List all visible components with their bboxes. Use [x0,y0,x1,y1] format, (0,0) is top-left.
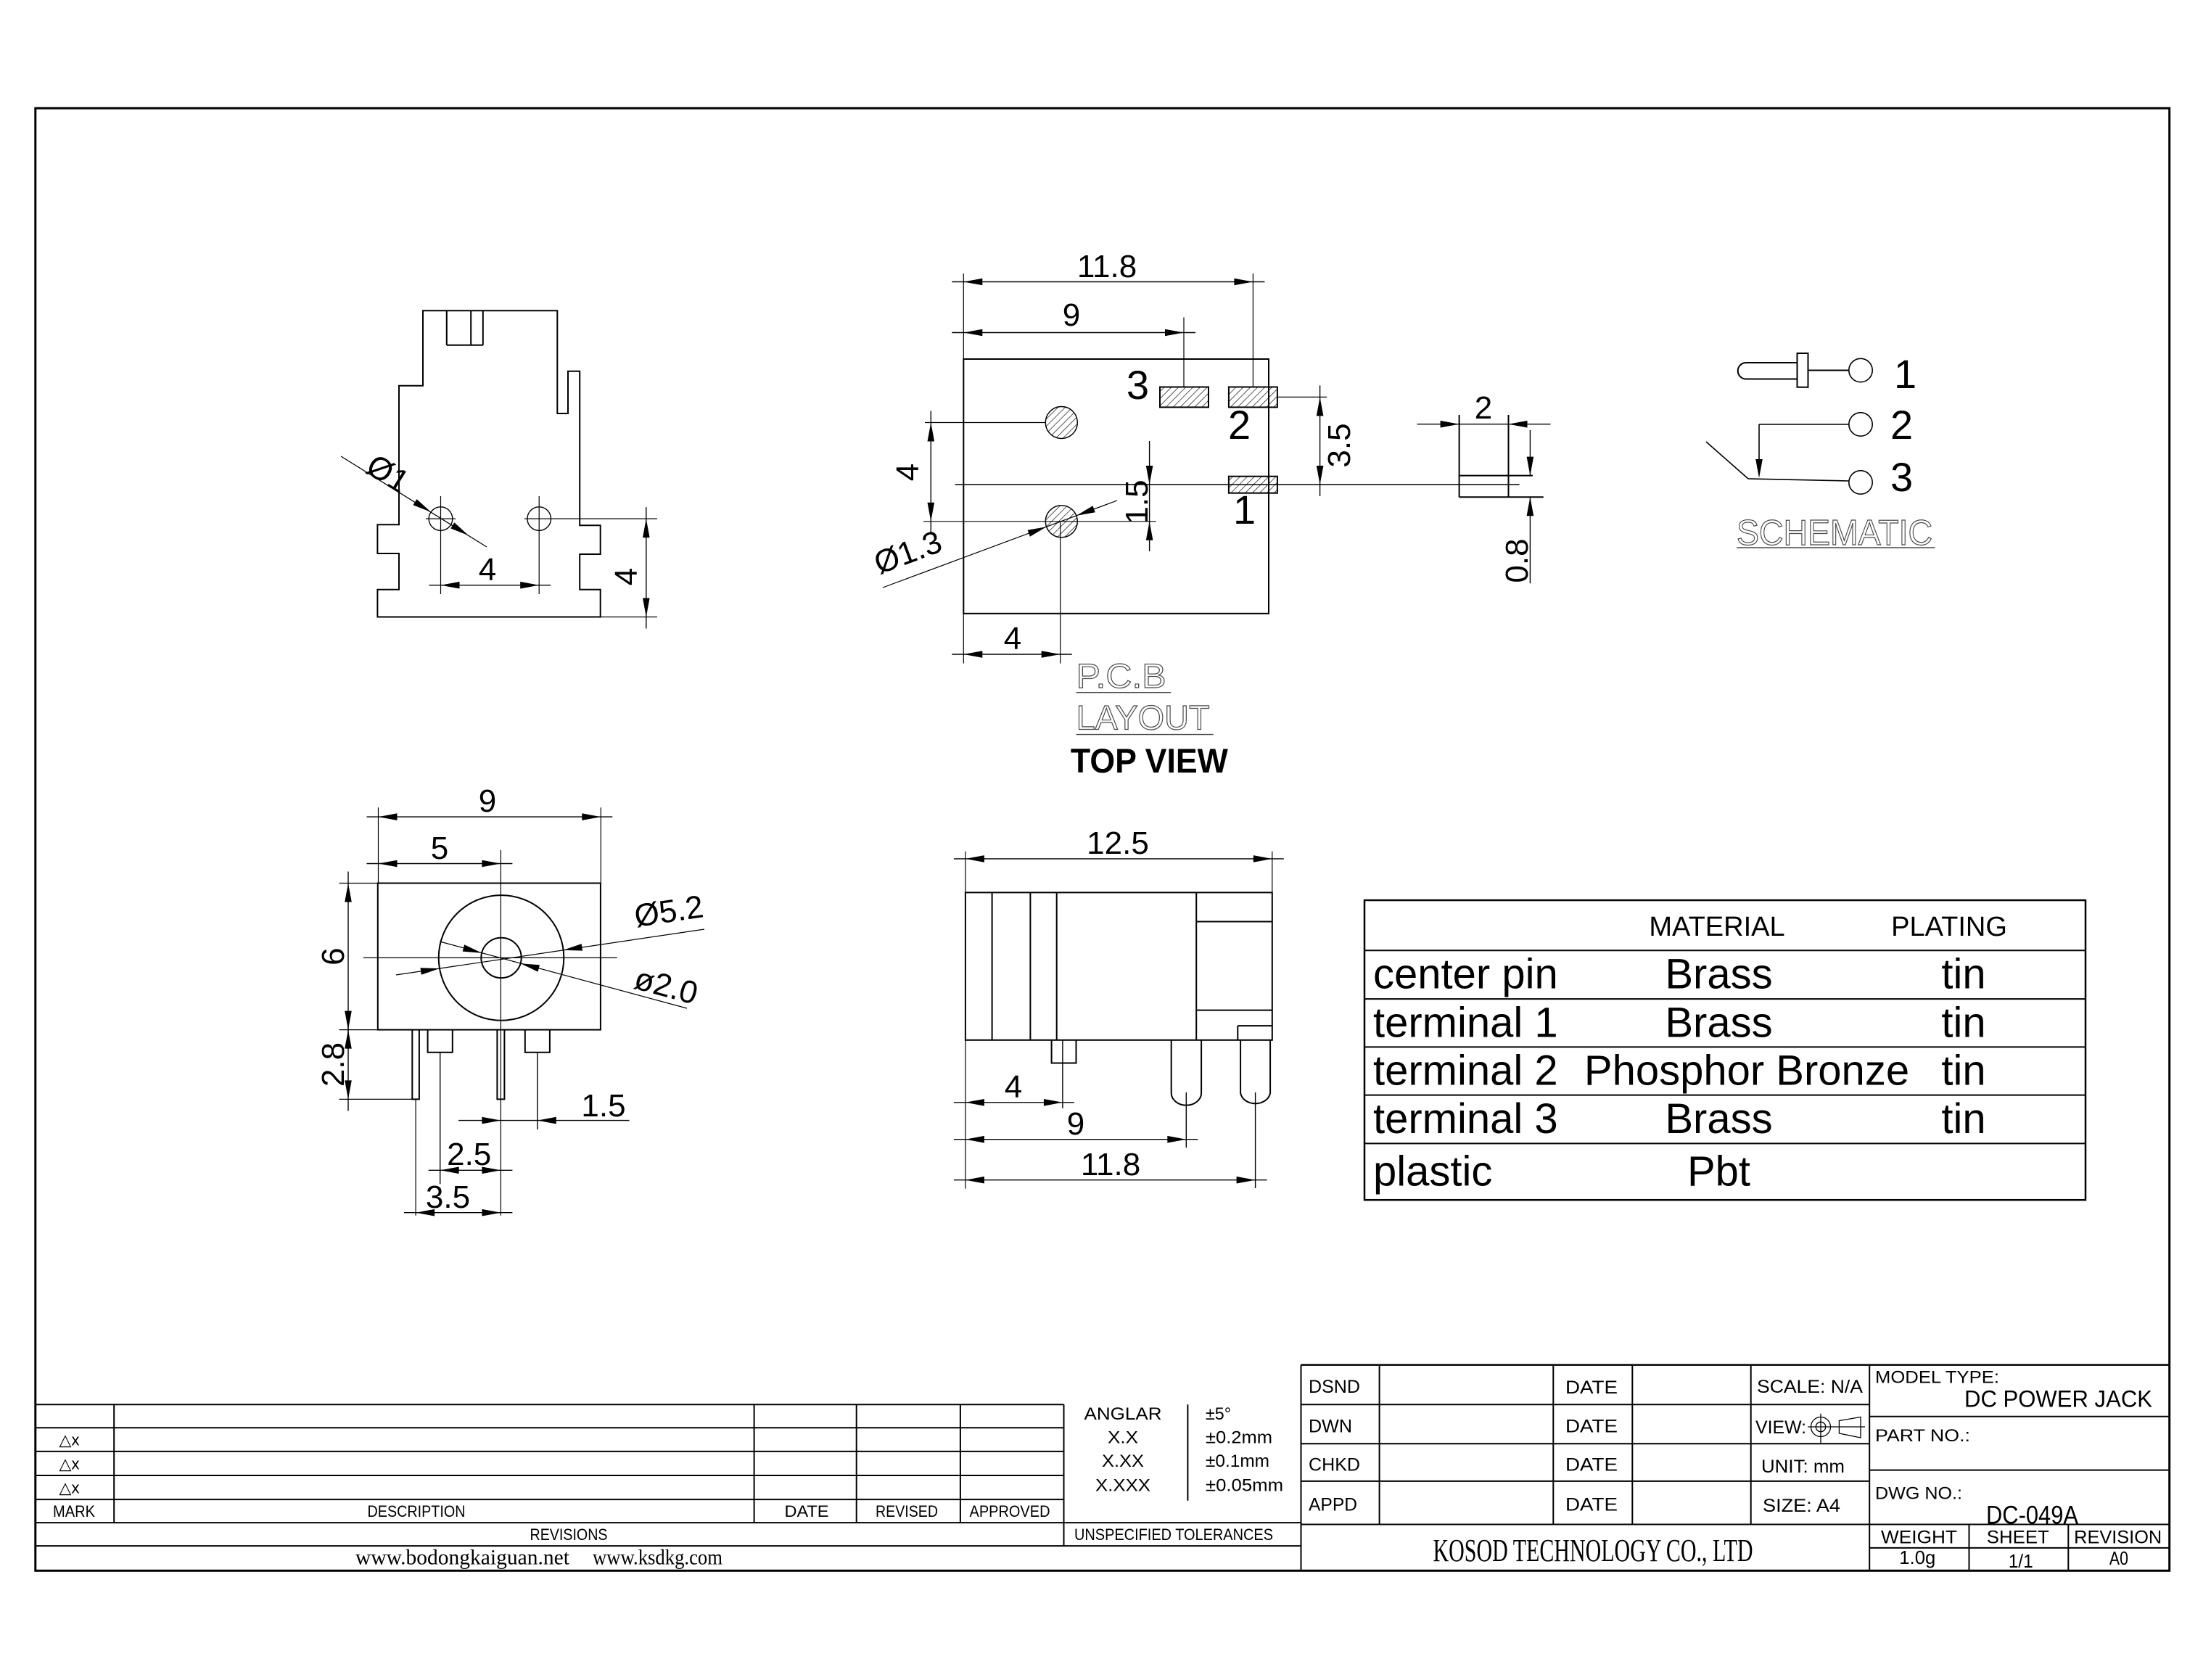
svg-text:DWG NO.:: DWG NO.: [1875,1483,1962,1503]
svg-text:△x: △x [59,1479,80,1497]
svg-text:www.bodongkaiguan.net: www.bodongkaiguan.net [355,1546,570,1570]
svg-text:tin: tin [1941,999,1985,1046]
svg-text:terminal 1: terminal 1 [1373,999,1558,1046]
svg-text:Pbt: Pbt [1687,1148,1750,1195]
svg-text:1/1: 1/1 [2009,1550,2033,1572]
svg-text:DATE: DATE [785,1502,829,1520]
svg-text:±0.1mm: ±0.1mm [1206,1452,1269,1471]
svg-text:1.0g: 1.0g [1899,1547,1935,1568]
svg-text:DATE: DATE [1565,1378,1618,1398]
svg-text:1: 1 [1233,487,1256,532]
svg-text:www.ksdkg.com: www.ksdkg.com [593,1546,722,1570]
svg-text:9: 9 [1063,297,1080,333]
svg-text:UNIT: mm: UNIT: mm [1761,1457,1845,1477]
svg-text:SCHEMATIC: SCHEMATIC [1737,514,1932,553]
svg-text:TOP VIEW: TOP VIEW [1071,741,1229,780]
svg-text:PLATING: PLATING [1891,912,2007,942]
svg-text:11.8: 11.8 [1081,1147,1140,1182]
svg-text:Phosphor Bronze: Phosphor Bronze [1584,1047,1909,1095]
svg-text:DC-049A: DC-049A [1986,1502,2079,1530]
svg-text:PART NO.:: PART NO.: [1875,1426,1970,1446]
svg-text:tin: tin [1941,951,1985,998]
svg-text:tin: tin [1941,1095,1985,1142]
svg-text:MARK: MARK [53,1502,95,1520]
svg-text:terminal 2: terminal 2 [1373,1047,1558,1095]
svg-text:4: 4 [609,568,644,585]
svg-text:2.8: 2.8 [316,1042,351,1087]
svg-text:1.5: 1.5 [1119,479,1155,524]
svg-text:CHKD: CHKD [1309,1454,1360,1475]
svg-text:2: 2 [1228,402,1251,448]
svg-text:X.XXX: X.XXX [1095,1475,1150,1495]
svg-text:4: 4 [1005,1069,1022,1105]
svg-text:KOSOD TECHNOLOGY CO., LTD: KOSOD TECHNOLOGY CO., LTD [1433,1533,1753,1568]
svg-text:SIZE: A4: SIZE: A4 [1763,1496,1840,1516]
svg-text:LAYOUT: LAYOUT [1076,699,1210,737]
svg-text:1.5: 1.5 [581,1088,625,1124]
svg-text:DATE: DATE [1565,1495,1618,1515]
svg-text:4: 4 [1004,621,1021,656]
svg-text:WEIGHT: WEIGHT [1881,1527,1957,1547]
svg-text:SHEET: SHEET [1987,1527,2049,1547]
svg-text:DESCRIPTION: DESCRIPTION [368,1502,466,1520]
svg-text:REVISED: REVISED [876,1502,938,1520]
svg-text:0.8: 0.8 [1499,538,1535,582]
svg-text:SCALE: N/A: SCALE: N/A [1757,1377,1863,1397]
svg-text:△x: △x [59,1454,80,1473]
svg-text:DSND: DSND [1309,1377,1360,1397]
svg-text:12.5: 12.5 [1087,825,1149,861]
svg-text:REVISION: REVISION [2074,1527,2162,1547]
svg-text:±5°: ±5° [1206,1404,1231,1424]
svg-text:6: 6 [316,947,351,965]
svg-text:P.C.B: P.C.B [1076,656,1166,695]
svg-text:MODEL TYPE:: MODEL TYPE: [1875,1367,1999,1387]
svg-text:3.5: 3.5 [1322,423,1357,467]
svg-text:terminal 3: terminal 3 [1373,1095,1558,1142]
svg-text:2.5: 2.5 [447,1137,491,1172]
svg-text:REVISIONS: REVISIONS [530,1525,608,1544]
svg-text:3.5: 3.5 [426,1179,470,1215]
svg-text:3: 3 [1127,362,1149,408]
svg-text:Brass: Brass [1665,999,1772,1046]
svg-text:tin: tin [1941,1047,1985,1095]
svg-text:DC POWER JACK: DC POWER JACK [1964,1385,2152,1412]
svg-text:center pin: center pin [1373,951,1558,998]
svg-text:Brass: Brass [1665,951,1772,998]
svg-text:A0: A0 [2109,1547,2128,1569]
svg-text:9: 9 [1067,1106,1084,1142]
svg-text:9: 9 [479,783,496,819]
svg-text:4: 4 [479,552,496,588]
svg-text:DATE: DATE [1565,1454,1618,1475]
svg-text:2: 2 [1890,402,1913,448]
svg-text:△x: △x [59,1431,80,1449]
svg-text:3: 3 [1890,454,1913,500]
svg-text:1: 1 [1894,351,1916,397]
svg-text:±0.2mm: ±0.2mm [1206,1428,1272,1448]
svg-text:ANGLAR: ANGLAR [1084,1404,1162,1424]
svg-text:X.X: X.X [1108,1428,1138,1448]
svg-text:MATERIAL: MATERIAL [1649,912,1784,942]
svg-text:5: 5 [431,831,448,866]
svg-text:APPD: APPD [1309,1495,1357,1515]
svg-text:2: 2 [1475,390,1492,426]
svg-text:DWN: DWN [1309,1417,1352,1437]
svg-text:Brass: Brass [1665,1095,1772,1142]
svg-text:plastic: plastic [1373,1148,1492,1195]
svg-text:4: 4 [890,464,926,481]
svg-text:VIEW:: VIEW: [1755,1417,1806,1438]
svg-text:DATE: DATE [1565,1417,1618,1437]
svg-text:11.8: 11.8 [1077,249,1137,284]
svg-text:UNSPECIFIED TOLERANCES: UNSPECIFIED TOLERANCES [1074,1525,1273,1544]
svg-text:±0.05mm: ±0.05mm [1206,1475,1283,1495]
svg-text:X.XX: X.XX [1102,1452,1144,1471]
svg-text:APPROVED: APPROVED [970,1502,1050,1520]
